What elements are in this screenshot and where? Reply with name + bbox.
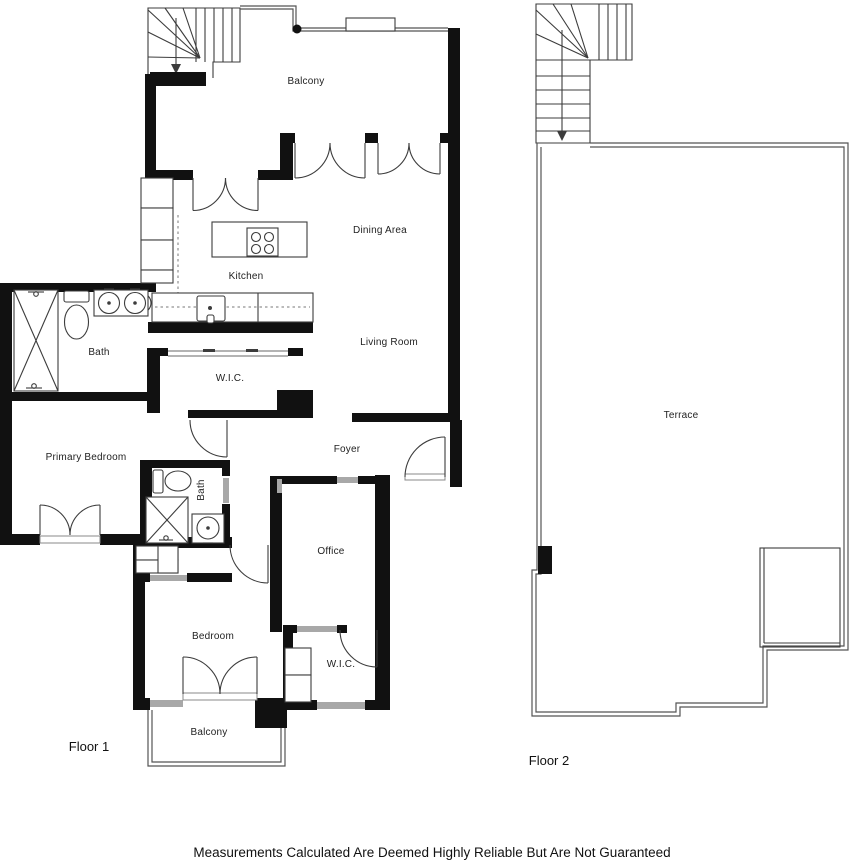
window xyxy=(297,626,337,632)
floorplan-page: Balcony Dining Area Kitchen Living Room … xyxy=(0,0,864,864)
room-label-bedroom: Bedroom xyxy=(192,631,234,642)
balcony-top-railing xyxy=(240,6,448,34)
shower-icon xyxy=(14,290,58,391)
roof-cutout xyxy=(760,548,840,647)
room-label-balcony-bottom: Balcony xyxy=(191,727,228,738)
door-hallway xyxy=(190,420,227,457)
window xyxy=(150,700,183,707)
stairs-icon xyxy=(536,4,632,143)
entry-door xyxy=(405,437,445,477)
room-label-dining: Dining Area xyxy=(353,225,407,236)
room-label-wic-primary: W.I.C. xyxy=(216,373,244,384)
french-door-dining-1 xyxy=(295,143,365,178)
french-door-sill xyxy=(40,536,100,543)
bedroom-closet xyxy=(136,546,178,573)
stove-icon xyxy=(247,228,278,256)
window xyxy=(317,702,365,709)
cabinet xyxy=(141,270,173,283)
door-bedroom xyxy=(230,545,268,583)
primary-bath-fixtures xyxy=(14,289,148,391)
room-label-wic-2: W.I.C. xyxy=(327,659,355,670)
floor2-plan: Terrace Floor 2 xyxy=(529,4,848,768)
planter-box xyxy=(346,18,395,31)
room-label-kitchen: Kitchen xyxy=(229,271,264,282)
cabinet xyxy=(141,240,173,270)
sink-icon xyxy=(192,514,224,543)
entry-sill xyxy=(405,474,445,480)
double-vanity-icon xyxy=(94,289,148,316)
floor1-label: Floor 1 xyxy=(69,739,109,754)
second-bath-fixtures xyxy=(146,470,224,543)
room-label-bath-primary: Bath xyxy=(88,347,109,358)
sink-icon xyxy=(197,296,225,323)
french-door-kitchen xyxy=(193,178,258,211)
room-label-primary-bedroom: Primary Bedroom xyxy=(46,452,127,463)
window xyxy=(277,479,282,493)
chimney-wall xyxy=(538,546,552,574)
window xyxy=(150,575,187,581)
window xyxy=(337,477,358,483)
room-label-balcony-top: Balcony xyxy=(288,76,325,87)
room-label-bath-2: Bath xyxy=(196,479,207,500)
french-door-primary xyxy=(40,505,100,535)
room-label-office: Office xyxy=(317,546,344,557)
toilet-icon xyxy=(153,470,191,493)
room-label-living: Living Room xyxy=(360,337,418,348)
room-label-foyer: Foyer xyxy=(334,444,361,455)
cabinet xyxy=(141,178,173,208)
room-label-terrace: Terrace xyxy=(664,410,699,421)
floorplan-drawing: Balcony Dining Area Kitchen Living Room … xyxy=(0,0,864,864)
kitchen-fixtures xyxy=(131,178,313,323)
cabinet xyxy=(141,208,173,240)
door-gap xyxy=(223,478,229,503)
disclaimer-text: Measurements Calculated Are Deemed Highl… xyxy=(193,845,670,860)
closet-rod xyxy=(168,349,288,356)
terrace-outline xyxy=(532,143,848,716)
shower-icon xyxy=(146,497,188,543)
toilet-icon xyxy=(64,291,89,339)
french-door-sill xyxy=(183,693,257,700)
floor2-label: Floor 2 xyxy=(529,753,569,768)
stairs-icon xyxy=(148,8,240,78)
french-door-dining-2 xyxy=(378,143,440,174)
french-door-bedroom xyxy=(183,657,257,694)
floor1-plan: Balcony Dining Area Kitchen Living Room … xyxy=(0,6,462,766)
wic2-shelves xyxy=(285,648,311,702)
